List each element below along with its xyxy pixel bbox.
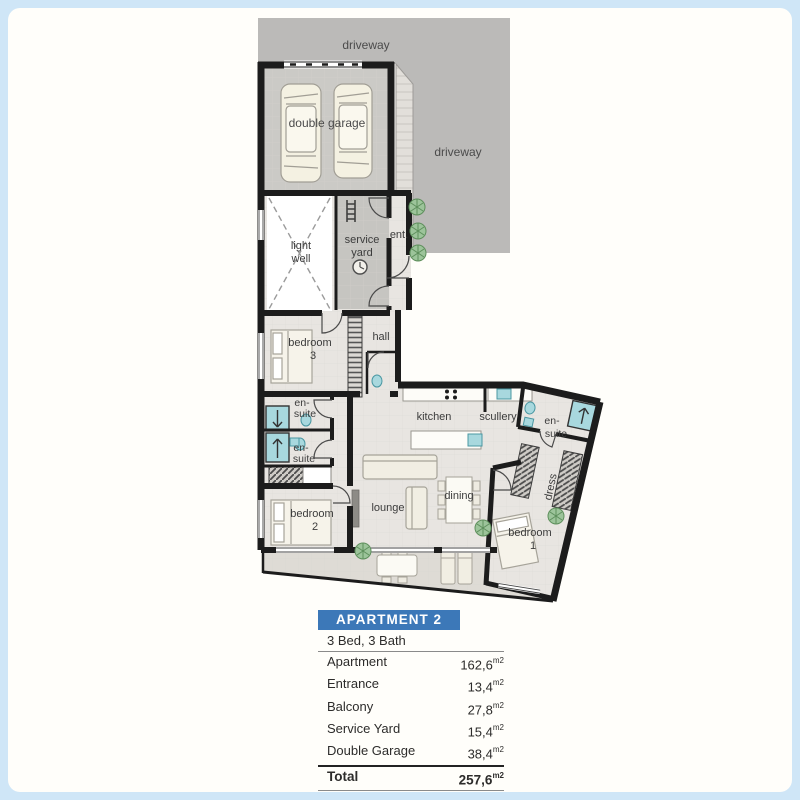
- summary-total-row: Total 257,6m2: [318, 765, 504, 792]
- ensuite-bed2-label: suite: [293, 453, 315, 465]
- dishwasher-icon: [497, 389, 511, 399]
- page: driveway driveway double garage light we…: [8, 8, 792, 792]
- bedroom3-label: bedroom: [288, 337, 331, 349]
- dining-label: dining: [444, 490, 473, 502]
- bedroom2-label: 2: [312, 521, 318, 533]
- apartment-summary: APARTMENT 2 3 Bed, 3 Bath Apartment 162,…: [318, 610, 504, 791]
- summary-row-label: Apartment: [327, 652, 387, 674]
- summary-row-label: Double Garage: [327, 741, 415, 763]
- ensuite-bed1-label: en-: [544, 415, 560, 427]
- scullery-label: scullery: [479, 411, 517, 423]
- summary-row-value: 38,4m2: [468, 741, 504, 763]
- summary-row: Apartment 162,6m2: [318, 652, 504, 674]
- entrance-label: ent.: [390, 229, 408, 241]
- summary-total-value: 257,6m2: [459, 767, 504, 791]
- double-garage-label: double garage: [289, 116, 366, 130]
- bedroom1-label: bedroom: [508, 527, 551, 539]
- service-yard-label: service: [345, 234, 380, 246]
- wardrobe: [269, 467, 303, 484]
- tv-unit: [352, 490, 359, 527]
- bed-icon: [271, 500, 331, 545]
- bedroom3-label: 3: [310, 350, 316, 362]
- lounge-label: lounge: [371, 502, 404, 514]
- summary-row: Entrance 13,4m2: [318, 674, 504, 696]
- bed-bath-subtitle: 3 Bed, 3 Bath: [318, 630, 504, 652]
- car-icon: [334, 84, 372, 178]
- summary-row-label: Service Yard: [327, 719, 400, 741]
- shower-icon: [266, 406, 289, 431]
- light-well-label: light: [291, 240, 311, 252]
- summary-row: Service Yard 15,4m2: [318, 719, 504, 741]
- summary-total-label: Total: [327, 767, 358, 791]
- stairs: [348, 316, 362, 397]
- summary-row-value: 15,4m2: [468, 719, 504, 741]
- toilet-icon: [372, 375, 382, 387]
- driveway-side-label: driveway: [434, 145, 481, 159]
- service-yard-label: yard: [351, 247, 372, 259]
- hall-label: hall: [372, 331, 389, 343]
- car-icon: [281, 84, 321, 182]
- shower-icon: [266, 433, 289, 462]
- summary-row-value: 162,6m2: [460, 652, 504, 674]
- ensuite-bed3-label: suite: [294, 408, 316, 420]
- bedroom2-label: bedroom: [290, 508, 333, 520]
- bedroom1-label: 1: [530, 540, 536, 552]
- summary-row-value: 27,8m2: [468, 697, 504, 719]
- summary-row: Balcony 27,8m2: [318, 697, 504, 719]
- apartment-title-bar: APARTMENT 2: [318, 610, 460, 630]
- garage-door: [284, 61, 362, 69]
- driveway-top-label: driveway: [342, 38, 389, 52]
- summary-row-label: Balcony: [327, 697, 373, 719]
- floor-plan: driveway driveway double garage light we…: [8, 8, 792, 620]
- sink-icon: [468, 434, 482, 446]
- sofa-icon: [363, 455, 437, 479]
- basin-icon: [523, 417, 533, 427]
- wardrobe-shelf: [303, 467, 331, 484]
- summary-row-label: Entrance: [327, 674, 379, 696]
- sofa-icon: [406, 487, 427, 529]
- ensuite-bed1-label: suite: [545, 428, 567, 440]
- light-well-label: well: [291, 253, 311, 265]
- summary-row: Double Garage 38,4m2: [318, 741, 504, 763]
- apartment-title: APARTMENT 2: [336, 612, 442, 627]
- kitchen-label: kitchen: [417, 411, 452, 423]
- summary-row-value: 13,4m2: [468, 674, 504, 696]
